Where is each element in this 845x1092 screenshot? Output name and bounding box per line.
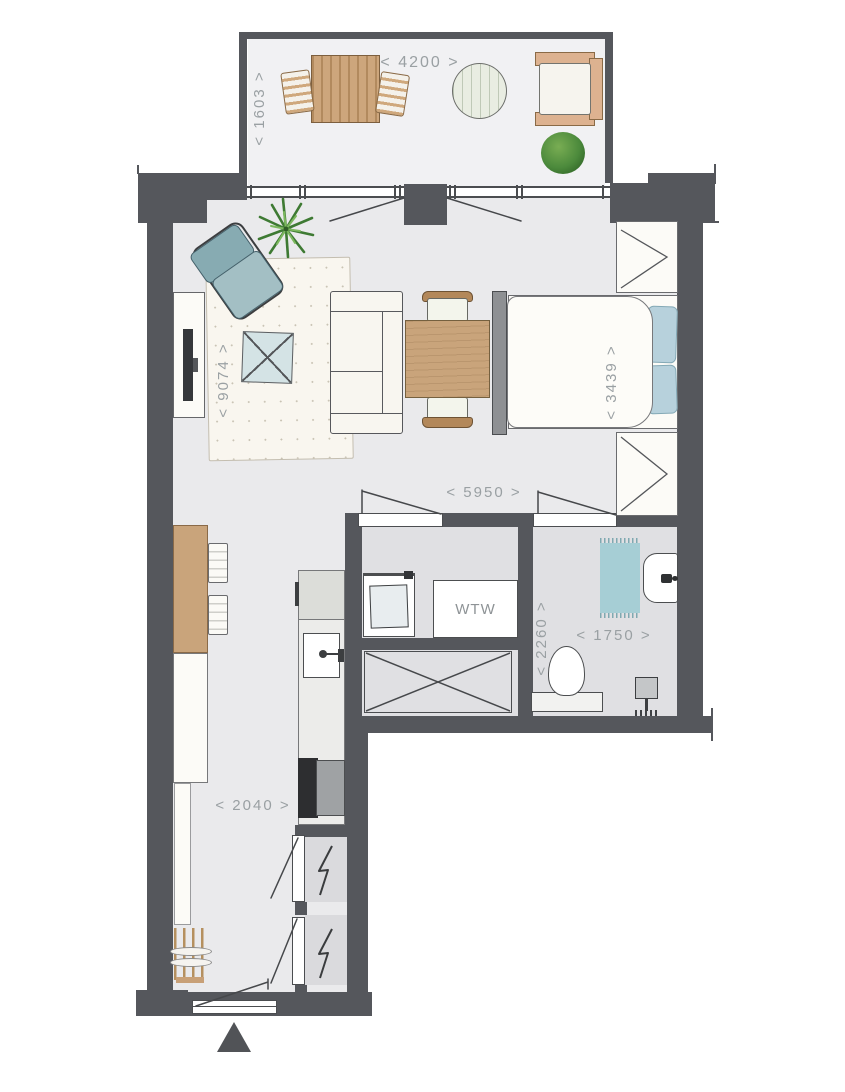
washing-machine-knob <box>404 571 413 579</box>
wall-cap-bottom-right <box>711 708 713 741</box>
radiator-strip <box>174 783 191 925</box>
kitchen-tall-cabinet <box>298 570 345 620</box>
window-mullion <box>250 185 252 199</box>
wall-top-right <box>610 183 715 223</box>
meter-closet-1-door <box>292 835 305 902</box>
wall-closet-stub-2 <box>295 985 307 993</box>
coat-rack-hook <box>170 958 212 967</box>
bar-chair-1 <box>208 543 228 583</box>
bed-duvet <box>507 296 653 428</box>
dining-chair-bottom <box>422 396 473 428</box>
bathroom-radiator <box>635 677 658 699</box>
balcony-round-table <box>452 63 507 119</box>
faucet-bracket <box>338 649 344 662</box>
dining-chair-top <box>422 291 473 322</box>
dining-chair-seat <box>427 298 468 322</box>
window-band-right <box>447 186 610 198</box>
shower-mat-fringe-bottom <box>600 613 640 618</box>
coat-rack-base <box>176 977 204 983</box>
window-mullion <box>299 185 301 199</box>
window-mullion <box>304 185 306 199</box>
wardrobe-bottom <box>616 432 678 516</box>
dim-living-length: < 9074 > <box>216 335 232 425</box>
balcony-chair-left <box>280 69 315 115</box>
balcony-plant <box>541 132 585 174</box>
toilet-bowl <box>548 646 585 696</box>
cabinet-handle <box>295 582 299 606</box>
dim-living-width: < 5950 > <box>434 485 534 501</box>
coffee-table <box>241 331 294 384</box>
sofa-cushion-line <box>331 371 383 372</box>
basin-tap-knob <box>672 576 678 581</box>
sofa-armrest-line-top <box>331 311 402 312</box>
sofa <box>330 291 403 434</box>
wall-top-left <box>138 173 207 223</box>
bed-partition <box>492 291 507 435</box>
shaft-box <box>364 651 512 713</box>
outdoor-chair-side-bar <box>589 58 603 120</box>
window-mullion <box>521 185 523 199</box>
wall-closet-stub <box>295 902 307 915</box>
sofa-back-line <box>382 311 383 414</box>
dim-bathroom-depth: < 2260 > <box>534 593 550 683</box>
wall-cap-top-left <box>137 165 139 174</box>
sofa-armrest-line-bottom <box>331 413 402 414</box>
bar-chair-2 <box>208 595 228 635</box>
window-mullion <box>454 185 456 199</box>
window-band-left <box>247 186 404 198</box>
meter-closet-2-floor <box>305 915 347 985</box>
wall-closet-right <box>347 837 368 992</box>
basin-tap-icon <box>661 574 672 583</box>
kitchen-sink <box>303 633 340 678</box>
meter-closet-1-floor <box>305 837 347 902</box>
window-mullion <box>399 185 401 199</box>
dim-hallway-width: < 2040 > <box>203 798 303 814</box>
tech-room-door <box>358 513 443 527</box>
window-pier <box>404 184 447 225</box>
wall-tech-shaft-divider <box>345 638 518 650</box>
entry-arrow-icon <box>217 1022 251 1052</box>
washing-machine-door <box>369 584 408 628</box>
window-mullion <box>602 185 604 199</box>
floor-plan: WTW <box>0 0 845 1092</box>
balcony-wall-left <box>239 32 247 180</box>
wall-bottom-middle <box>345 716 713 733</box>
shower-mat <box>600 543 640 613</box>
heat-recovery-unit: WTW <box>433 580 518 638</box>
balcony-wall-right <box>605 32 613 183</box>
dim-balcony-depth: < 1603 > <box>252 63 268 153</box>
window-mullion <box>449 185 451 199</box>
dim-balcony-width: < 4200 > <box>370 55 470 71</box>
radiator-base <box>635 710 658 716</box>
coat-rack-hook <box>170 947 212 956</box>
wall-cap-right-edge <box>703 221 719 223</box>
dining-chair-back <box>422 417 473 428</box>
balcony-wall-top <box>239 32 613 39</box>
tv-bracket <box>193 358 198 372</box>
wall-left <box>147 223 173 992</box>
wall-hall-right <box>345 733 368 837</box>
tv <box>183 329 193 401</box>
wall-cap-top-right <box>714 164 716 184</box>
dim-bathroom-width: < 1750 > <box>566 628 662 644</box>
window-mullion <box>516 185 518 199</box>
wall-tech-left <box>345 513 362 733</box>
wall-kitchen-bottom <box>295 825 368 837</box>
window-mullion <box>394 185 396 199</box>
cooktop-pan <box>316 760 345 816</box>
wall-top-right-step <box>648 173 715 185</box>
bathroom-door <box>533 513 617 527</box>
wardrobe-top <box>616 221 678 293</box>
dim-bedroom-width: < 3439 > <box>604 337 620 427</box>
wall-right <box>677 223 703 733</box>
dining-table <box>405 320 490 398</box>
meter-closet-2-door <box>292 917 305 985</box>
sideboard <box>173 653 208 783</box>
bar-table <box>173 525 208 653</box>
outdoor-chair-cushion <box>539 63 591 115</box>
entry-door-threshold <box>192 1000 277 1014</box>
